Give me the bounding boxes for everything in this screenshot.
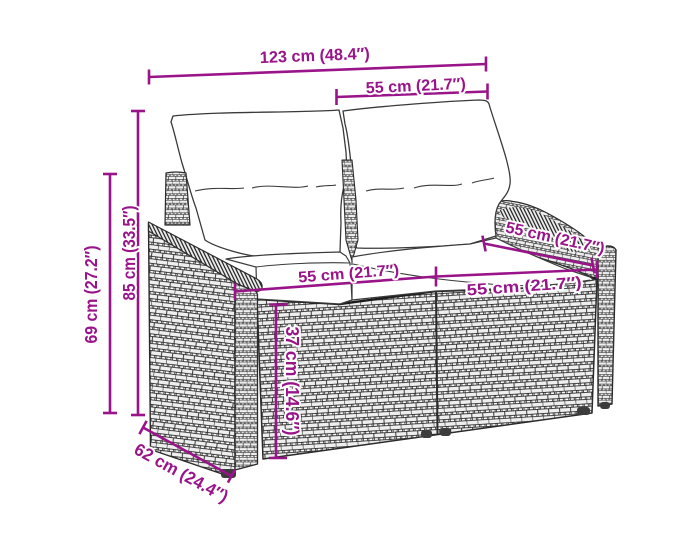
svg-text:69 cm (27.2″): 69 cm (27.2″)	[81, 246, 101, 344]
svg-text:37 cm (14.6″): 37 cm (14.6″)	[282, 327, 302, 436]
svg-text:85 cm (33.5″): 85 cm (33.5″)	[119, 206, 139, 301]
